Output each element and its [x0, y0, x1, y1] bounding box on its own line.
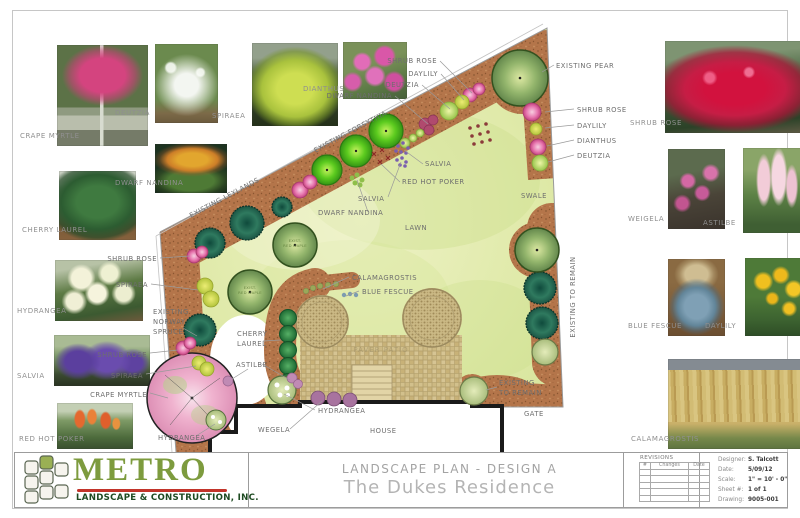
- paver-logo-icon: [23, 455, 75, 505]
- info-value: 1" = 10' - 0": [748, 477, 787, 483]
- callout: SALVIA: [425, 160, 451, 168]
- callout: SWALE: [521, 192, 547, 200]
- logo-underline: [77, 489, 227, 492]
- callout: EXISTING PEAR: [556, 62, 614, 70]
- callout: ASTILBE: [236, 361, 267, 369]
- revisions-header: REVISIONS: [640, 455, 673, 461]
- callout: DAYLILY: [577, 122, 607, 130]
- patio-label: PAVER PATIO: [353, 346, 408, 354]
- callout: SPRUCE: [153, 328, 183, 336]
- revisions-table: # Changes Date: [639, 462, 710, 502]
- callout: EXISTING: [153, 308, 189, 316]
- callout: SHRUB ROSE: [387, 57, 437, 65]
- callout: SHRUB ROSE: [97, 351, 147, 359]
- info-label: Date:: [718, 467, 748, 473]
- callout: CHERRY: [237, 330, 268, 338]
- callout: DEUTZIA: [577, 152, 610, 160]
- callout: EXISTING TO REMAIN: [569, 256, 577, 337]
- callout: HYDRANGEA: [318, 407, 365, 415]
- info-value: 5/09/12: [748, 467, 772, 473]
- callout: TO REMAIN: [498, 389, 542, 397]
- callout: SHRUB ROSE: [577, 106, 627, 114]
- callout: DIANTHUS: [577, 137, 617, 145]
- sheet-title: LANDSCAPE PLAN - DESIGN A: [262, 462, 637, 476]
- callout: GATE: [524, 410, 544, 418]
- callout: DWARF NANDINA: [318, 209, 383, 217]
- info-value: 1 of 1: [748, 487, 767, 493]
- info-label: Sheet #:: [718, 487, 748, 493]
- patio-medallion: [403, 289, 461, 347]
- title-block: METRO LANDSCAPE & CONSTRUCTION, INC. LAN…: [14, 452, 788, 508]
- callout: LAUREL: [237, 340, 266, 348]
- callout: NORWAY: [153, 318, 186, 326]
- house-label: HOUSE: [370, 427, 397, 435]
- info-value: 9005-001: [748, 497, 779, 503]
- callout: DEUTZIA: [386, 81, 419, 89]
- logo-wordmark: METRO: [73, 452, 208, 489]
- patio-steps: [352, 365, 392, 402]
- callout: EXISTING: [499, 379, 535, 387]
- drawing-info: Designer:S. Talcott Date:5/09/12 Scale:1…: [713, 453, 800, 507]
- callout: SPIRAEA: [116, 281, 148, 289]
- landscape-plan: PAVER PATIO HOUSE EXIS: [0, 0, 800, 518]
- callout: RED HOT POKER: [402, 178, 465, 186]
- callout: SPIRAEA: [111, 372, 143, 380]
- drawing-sheet: CRAPE MYRTLE CHERRY LAUREL HYDRANGEA SAL…: [0, 0, 800, 518]
- callout: BLUE FESCUE: [362, 288, 414, 296]
- revisions-block: REVISIONS # Changes Date: [637, 453, 713, 507]
- callout: HYDRANGEA: [158, 434, 205, 442]
- info-label: Scale:: [718, 477, 748, 483]
- patio-medallion: [296, 296, 348, 348]
- info-value: S. Talcott: [748, 457, 778, 463]
- callout: SHRUB ROSE: [107, 255, 157, 263]
- info-label: Drawing:: [718, 497, 748, 503]
- info-label: Designer:: [718, 457, 748, 463]
- callout: LAWN: [405, 224, 427, 232]
- tree-label: RED MAPLE: [238, 290, 262, 295]
- callout: WEGELA: [258, 426, 290, 434]
- callout: DAYLILY: [408, 70, 438, 78]
- logo-subtitle: LANDSCAPE & CONSTRUCTION, INC.: [76, 493, 259, 503]
- tree-label: RED MAPLE: [283, 243, 307, 248]
- callout: CRAPE MYRTLE: [90, 391, 147, 399]
- callout: DWARF NANDINA: [327, 92, 392, 100]
- callout: CALAMAGROSTIS: [352, 274, 417, 282]
- sheet-subtitle: The Dukes Residence: [262, 477, 637, 498]
- callout: SALVIA: [358, 195, 384, 203]
